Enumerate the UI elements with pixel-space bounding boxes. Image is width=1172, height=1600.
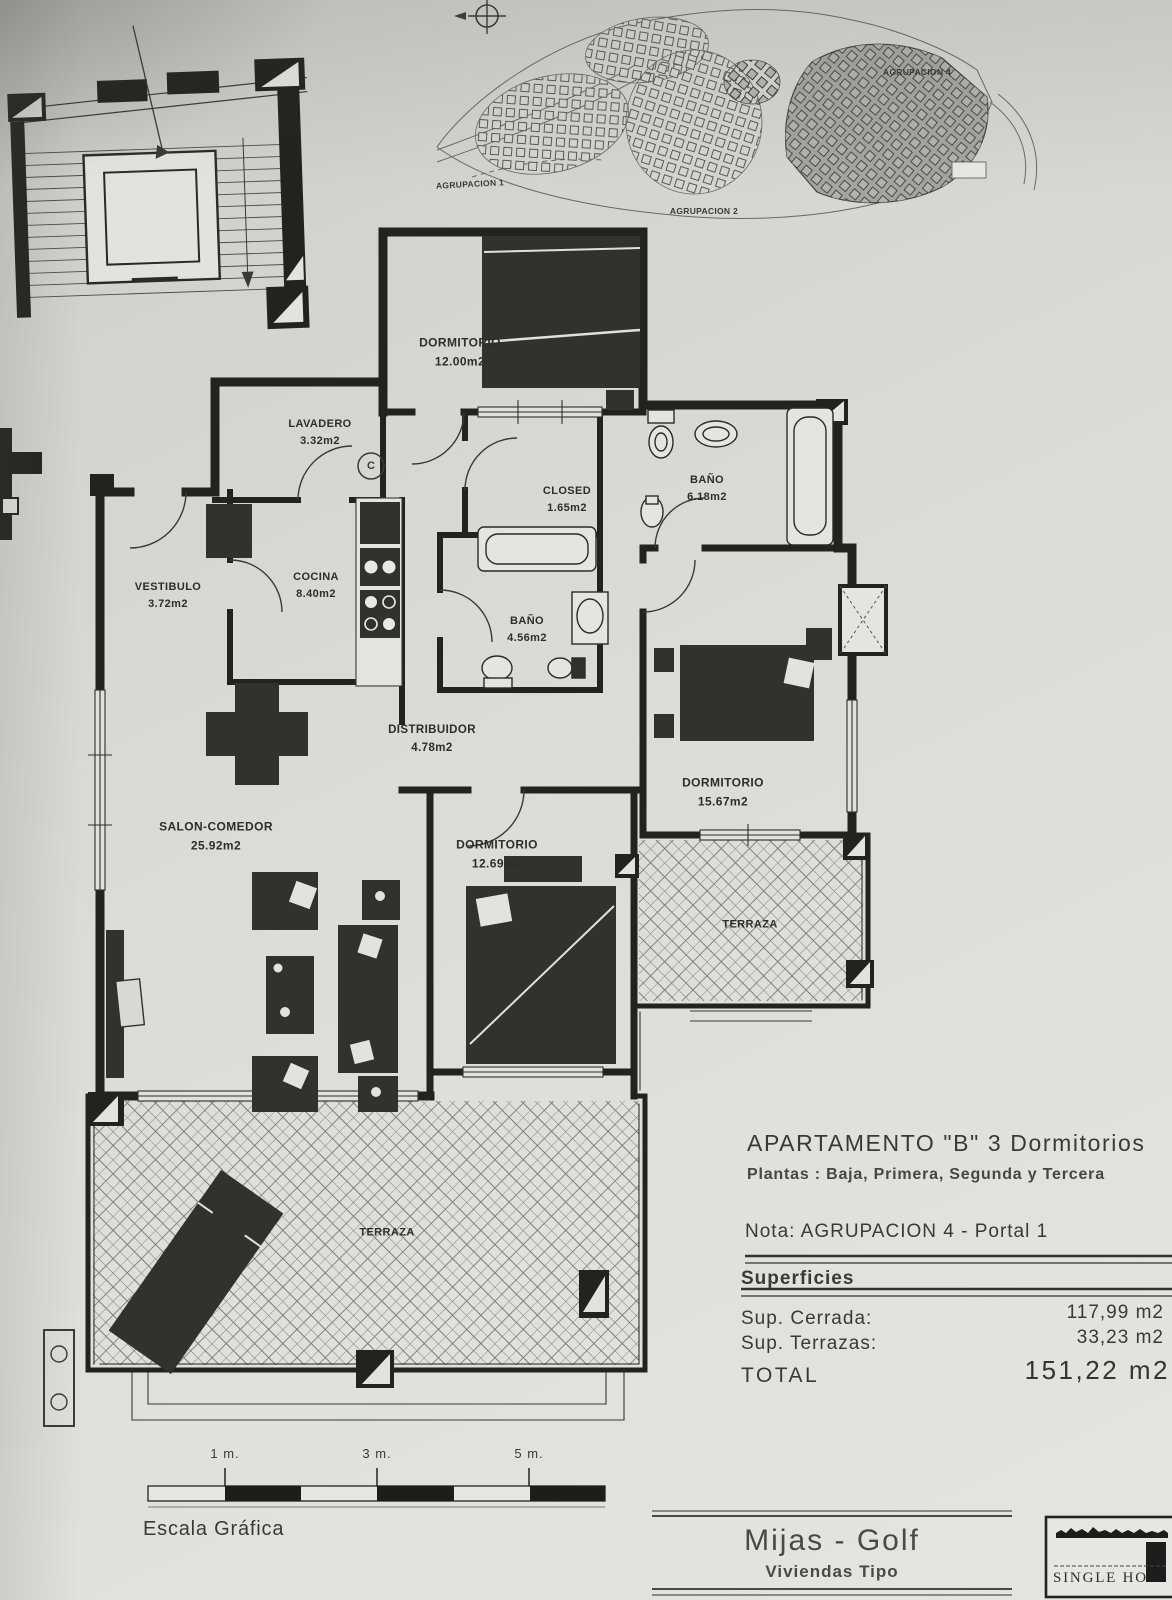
room-name: CLOSED (543, 483, 591, 500)
logo-text: SINGLE HO (1053, 1570, 1148, 1587)
room-area: 4.56m2 (507, 630, 547, 647)
terrace-table (212, 1197, 254, 1239)
site-plan (437, 0, 1037, 218)
scale-tick-5m: 5 m. (514, 1446, 543, 1461)
room-label-salon-comedor: SALON-COMEDOR 25.92m2 (159, 817, 273, 854)
scale-caption: Escala Gráfica (143, 1518, 284, 1541)
room-name: DISTRIBUIDOR (388, 722, 476, 740)
room-label-bano-1: BAÑO 6.18m2 (687, 472, 727, 506)
superficies-heading: Superficies (741, 1268, 854, 1290)
compass-icon (454, 0, 506, 34)
total-value: 151,22 m2 (1025, 1355, 1170, 1386)
room-name: DORMITORIO (682, 773, 764, 792)
room-area: 4.78m2 (388, 740, 476, 758)
room-label-bano-2: BAÑO 4.56m2 (507, 613, 547, 647)
room-label-lavadero: LAVADERO 3.32m2 (288, 416, 351, 450)
sup-cerrada-value: 117,99 m2 (1067, 1302, 1164, 1324)
scale-tick-1m: 1 m. (210, 1446, 239, 1461)
scale-bar (148, 1468, 605, 1507)
room-name: BAÑO (507, 613, 547, 630)
room-area: 3.32m2 (288, 433, 351, 450)
room-area: 12.00m2 (419, 352, 501, 371)
site-label-agrupacion-4: AGRUPACION 4 (883, 67, 951, 77)
room-area: 15.67m2 (682, 792, 764, 811)
room-name: BAÑO (687, 472, 727, 489)
plantas-line: Plantas : Baja, Primera, Segunda y Terce… (747, 1166, 1105, 1184)
adjacent-unit-fragments (0, 428, 74, 1426)
sup-terrazas-value: 33,23 m2 (1077, 1327, 1164, 1349)
room-area: 3.72m2 (135, 596, 202, 613)
stair-core-detail (5, 20, 316, 338)
site-label-agrupacion-2: AGRUPACION 2 (670, 206, 738, 216)
total-label: TOTAL (741, 1364, 819, 1388)
room-area: 1.65m2 (543, 500, 591, 517)
room-area: 25.92m2 (159, 836, 273, 855)
apartment-title: APARTAMENTO "B" 3 Dormitorios (747, 1130, 1145, 1157)
scale-tick-3m: 3 m. (362, 1446, 391, 1461)
room-label-vestibulo: VESTIBULO 3.72m2 (135, 579, 202, 613)
room-name: COCINA (293, 569, 339, 586)
sup-cerrada-label: Sup. Cerrada: (741, 1308, 872, 1330)
room-name: SALON-COMEDOR (159, 817, 273, 836)
room-area: 12.69m2 (456, 854, 538, 873)
room-label-distribuidor: DISTRIBUIDOR 4.78m2 (388, 722, 476, 758)
boiler-symbol: C (358, 453, 384, 479)
shaft (840, 586, 886, 654)
room-label-terraza-right: TERRAZA (722, 916, 777, 933)
room-label-terraza-bottom: TERRAZA (359, 1224, 414, 1241)
nota-line: Nota: AGRUPACION 4 - Portal 1 (745, 1221, 1048, 1243)
sup-terrazas-label: Sup. Terrazas: (741, 1333, 877, 1355)
room-name: VESTIBULO (135, 579, 202, 596)
project-subtitle: Viviendas Tipo (765, 1562, 898, 1582)
floorplan-drawing (0, 0, 1172, 1600)
room-label-dormitorio-1: DORMITORIO 12.00m2 (419, 333, 501, 370)
room-name: TERRAZA (722, 916, 777, 933)
room-label-closed: CLOSED 1.65m2 (543, 483, 591, 517)
room-area: 6.18m2 (687, 489, 727, 506)
stair-direction-arrow (242, 272, 255, 288)
room-name: DORMITORIO (456, 835, 538, 854)
room-name: LAVADERO (288, 416, 351, 433)
logo-building (1146, 1542, 1166, 1582)
room-label-dormitorio-3: DORMITORIO 15.67m2 (682, 773, 764, 810)
room-area: 8.40m2 (293, 586, 339, 603)
scanned-floorplan-page: AGRUPACION 1 AGRUPACION 2 AGRUPACION 4 D… (0, 0, 1172, 1600)
room-label-dormitorio-2: DORMITORIO 12.69m2 (456, 835, 538, 872)
room-name: DORMITORIO (419, 333, 501, 352)
room-label-cocina: COCINA 8.40m2 (293, 569, 339, 603)
room-name: TERRAZA (359, 1224, 414, 1241)
project-title: Mijas - Golf (744, 1524, 920, 1558)
